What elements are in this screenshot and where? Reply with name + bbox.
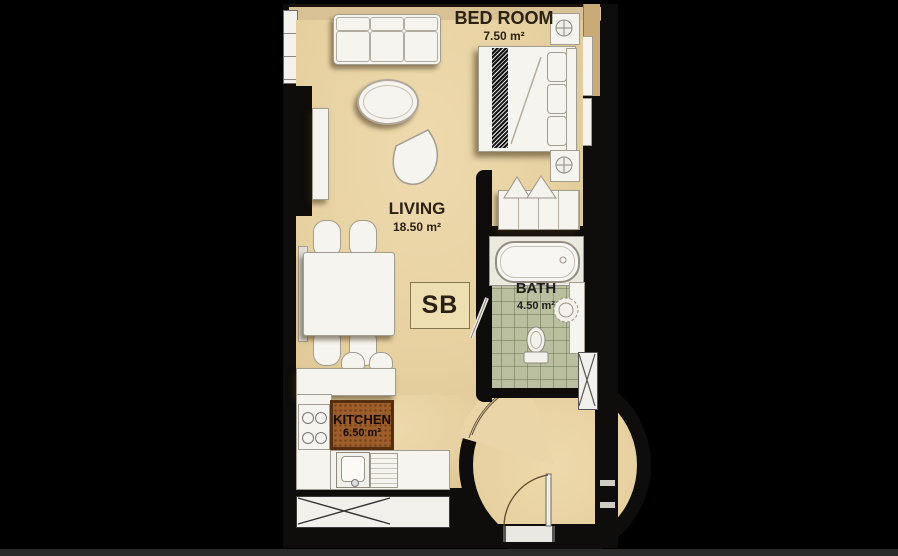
living-label: LIVING 18.50 m²: [374, 200, 460, 234]
coffee-table-rim: [363, 85, 413, 119]
bathtub-rim: [500, 246, 575, 278]
bed-headboard: [566, 48, 577, 152]
kitchen-area: 6.50 m²: [343, 427, 381, 439]
kitchen-label-patch: KITCHEN 6.50 m²: [330, 400, 394, 450]
pillow: [547, 116, 567, 146]
wall-protrusion-left: [283, 86, 312, 216]
tv-console: [312, 108, 329, 200]
bath-name: BATH: [497, 281, 575, 298]
dining-table: [303, 252, 395, 336]
kitchen-sink: [336, 452, 370, 488]
shaft-bottom: [296, 496, 450, 528]
stove: [298, 404, 330, 450]
bedroom-area: 7.50 m²: [444, 30, 564, 43]
nightstand-bottom: [550, 150, 580, 182]
bedroom-name: BED ROOM: [444, 9, 564, 29]
living-area: 18.50 m²: [374, 221, 460, 234]
sofa-seat: [336, 31, 370, 62]
drainboard: [370, 453, 398, 488]
faucet: [351, 479, 359, 487]
bed-blanket-fold: [492, 48, 508, 148]
burner: [315, 432, 327, 444]
sofa-back-cushion: [404, 17, 438, 31]
coffee-table: [357, 79, 419, 125]
bar-stool: [341, 352, 365, 369]
sofa-back-cushion: [370, 17, 404, 31]
sink-basin: [341, 456, 365, 482]
pillow: [547, 84, 567, 114]
wall-break-mark: [600, 480, 615, 486]
bath-area: 4.50 m²: [497, 300, 575, 312]
sofa-seat: [370, 31, 404, 62]
kitchen-name: KITCHEN: [333, 412, 391, 427]
living-name: LIVING: [374, 200, 460, 219]
wardrobe: [498, 190, 580, 230]
entrance-threshold: [503, 526, 555, 542]
sofa-seat: [404, 31, 438, 62]
sofa-back-cushion: [336, 17, 370, 31]
floorplan-canvas: BED ROOM 7.50 m² LIVING 18.50 m² BATH 4.…: [0, 0, 898, 556]
bathtub: [495, 241, 580, 283]
bar-stool: [369, 352, 393, 369]
wall-break-mark: [600, 502, 615, 508]
burner: [315, 412, 327, 424]
unit-type-badge: SB: [410, 282, 470, 329]
bedroom-label: BED ROOM 7.50 m²: [444, 9, 564, 43]
image-bottom-edge: [0, 549, 898, 556]
kitchen-bar-counter: [296, 368, 396, 396]
sofa: [333, 14, 441, 65]
wall-living-bath-divider: [476, 170, 492, 402]
shaft-right: [578, 352, 598, 410]
burner: [302, 432, 314, 444]
pillow: [547, 52, 567, 82]
burner: [302, 412, 314, 424]
bath-label: BATH 4.50 m²: [497, 281, 575, 312]
